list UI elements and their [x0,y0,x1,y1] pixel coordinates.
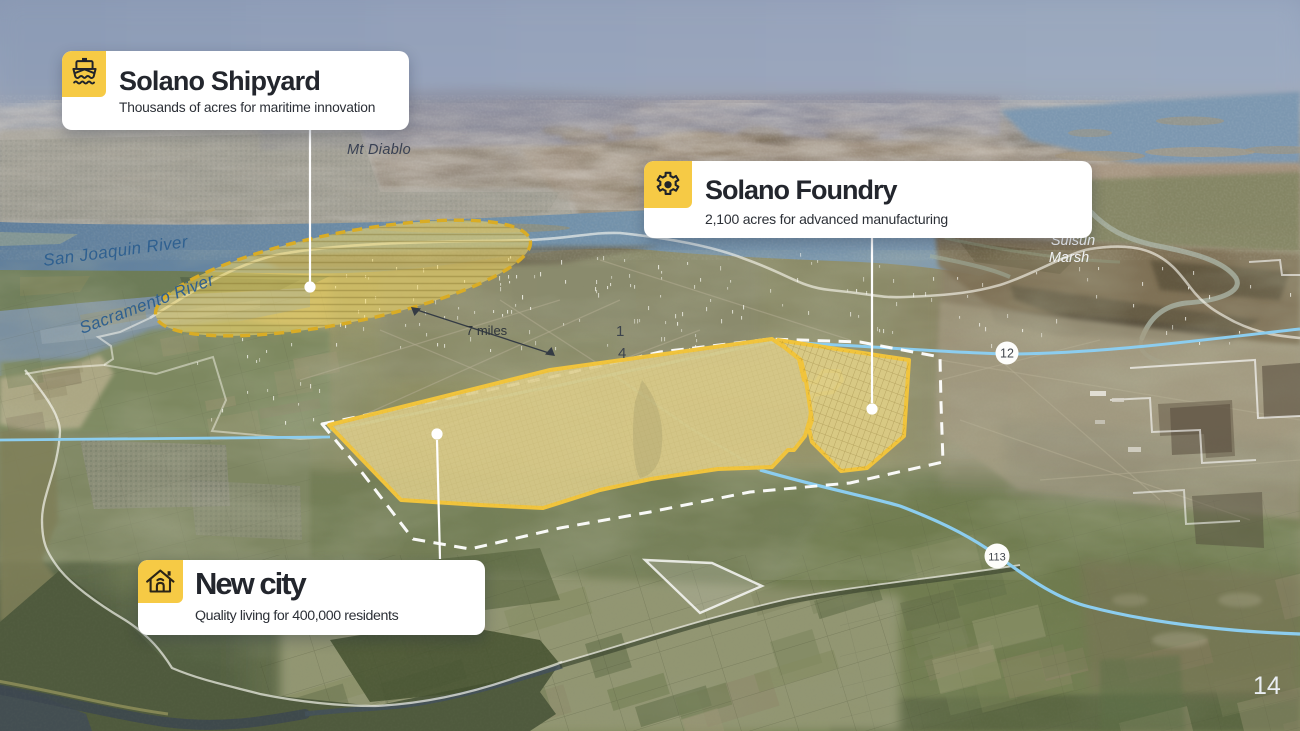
svg-text:113: 113 [988,552,1006,564]
svg-text:14: 14 [1253,672,1281,700]
svg-text:4: 4 [618,345,626,362]
svg-text:7 miles: 7 miles [466,323,508,338]
svg-text:1: 1 [616,323,624,340]
svg-text:12: 12 [1000,347,1014,361]
svg-text:Marsh: Marsh [1049,250,1089,266]
svg-text:Mt Diablo: Mt Diablo [347,142,411,158]
